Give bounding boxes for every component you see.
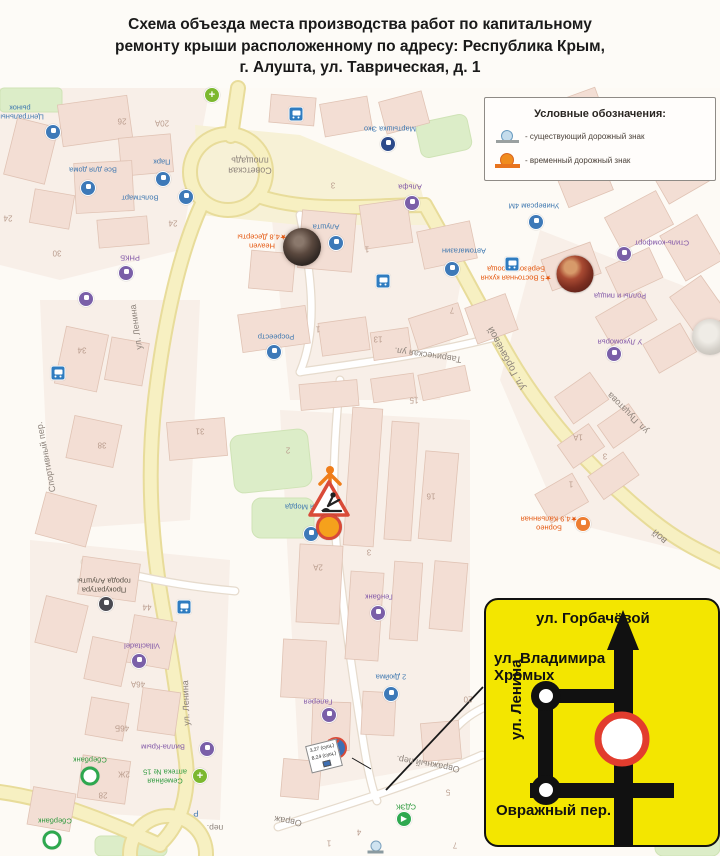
cdek-icon: ▶ <box>396 811 412 827</box>
bus-stop-icon <box>51 366 66 381</box>
legend-title: Условные обозначения: <box>485 108 715 120</box>
page-title: Схема объезда места производства работ п… <box>0 14 720 79</box>
market-poi-icon <box>45 124 61 140</box>
bus-stop-icon <box>376 274 391 289</box>
bus-stop-icon <box>289 107 304 122</box>
poi-icon <box>78 291 94 307</box>
stil-komfort-poi-icon <box>616 246 632 262</box>
punch-hole <box>692 319 720 355</box>
avtomagazin-poi-icon <box>444 261 460 277</box>
vse-dlya-doma-poi-icon <box>80 180 96 196</box>
sberbank-icon <box>81 767 100 786</box>
park-poi-icon <box>155 171 171 187</box>
genbank-poi-icon <box>370 605 386 621</box>
legend-item-label: - временный дорожный знак <box>525 156 630 165</box>
detour-inset-diagram: ул. Горбачёвой ул. Владимира Хромых ул. … <box>484 598 720 847</box>
martyshka-poi-icon <box>380 136 396 152</box>
borneo-poi-icon <box>575 516 591 532</box>
inset-street-ovrazhny: Овражный пер. <box>496 802 611 819</box>
lukomorye-poi-icon <box>606 346 622 362</box>
rnkb-poi-icon <box>118 265 134 281</box>
inset-street-gorbachevoy: ул. Горбачёвой <box>536 610 650 627</box>
alfa-poi-icon <box>404 195 420 211</box>
villa-krym-poi-icon <box>199 741 215 757</box>
punch-hole <box>283 228 321 266</box>
galereya-poi-icon <box>321 707 337 723</box>
universam-poi-icon <box>528 214 544 230</box>
bus-stop-icon <box>505 257 520 272</box>
prosecutor-poi-icon <box>98 596 114 612</box>
rosreestr-poi-icon <box>266 344 282 360</box>
sberbank-icon <box>43 831 62 850</box>
bus-stop-icon <box>177 600 192 615</box>
alushta-poi-icon <box>328 235 344 251</box>
detour-scheme-page: Схема объезда места производства работ п… <box>0 0 720 856</box>
pharmacy-icon: + <box>204 87 220 103</box>
legend-item-temporary: - временный дорожный знак <box>495 152 630 168</box>
restaurant-photo-icon <box>557 256 594 293</box>
2-dyuyma-poi-icon <box>383 686 399 702</box>
legend-item-existing: - существующий дорожный знак <box>495 128 644 144</box>
existing-sign-marker <box>371 841 382 852</box>
roadworks-sign-icon <box>305 462 360 522</box>
existing-sign-symbol-icon <box>495 128 525 144</box>
temporary-sign-symbol-icon <box>495 152 525 168</box>
voltmart-poi-icon <box>178 189 194 205</box>
temporary-sign-3-2 <box>316 514 342 540</box>
inset-street-lenina: ул. Ленина <box>508 659 525 740</box>
pharmacy-icon: + <box>192 768 208 784</box>
legend-item-label: - существующий дорожный знак <box>525 132 644 141</box>
legend-box: Условные обозначения: - существующий дор… <box>484 97 716 181</box>
mini-sign-icon <box>322 759 331 767</box>
villacitadel-poi-icon <box>131 653 147 669</box>
